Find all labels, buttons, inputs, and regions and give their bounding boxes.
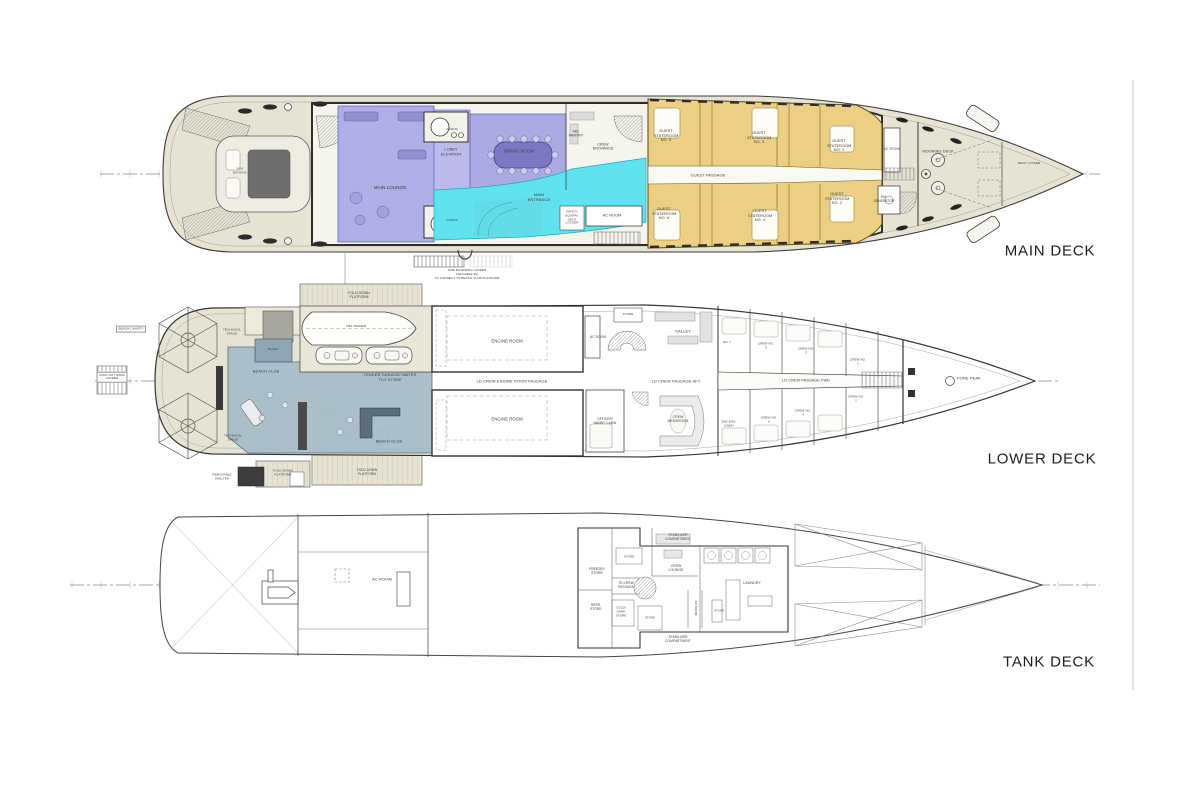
label-ld-crew-passage-fwd: LD CREW PASSAGE FWD (782, 379, 830, 384)
main-deck-title: MAIN DECK (1005, 243, 1096, 260)
label-tender-garage: TENDER GARAGE/ WATER TOY STORE (361, 372, 419, 382)
label-safety-locker: SAFETY EQUIPM. DECK LOCKER (562, 211, 582, 226)
lower-deck-drawing (95, 284, 1060, 487)
label-crew-no2: CREW NO. 2 (847, 395, 865, 403)
label-fold-down-platform-top: FOLD DOWN PLATFORM (342, 291, 376, 300)
label-crew-lounge: CREW LOUNGE (664, 564, 688, 573)
label-tender: 10M TENDER (346, 325, 366, 329)
label-ld-crew-passage-aft: LD CREW PASSAGE AFT (652, 379, 701, 384)
label-fold-down-platform-b1: FOLD DOWN PLATFORM (269, 469, 297, 477)
label-beach-canopy: BEACH CANOPY (116, 326, 146, 333)
label-guest-stateroom-2: GUEST STATEROOM NO. 2 (825, 192, 849, 206)
label-store-top: STORE (624, 555, 634, 558)
label-ac-room-vert: AC ROOM (693, 600, 697, 615)
label-store-right: STORE (714, 609, 724, 612)
label-2nd-eng-cabin: 2ND ENG. CABIN (719, 420, 739, 428)
label-guest-passage: GUEST PASSAGE (691, 173, 726, 178)
label-store-mid: STORE (645, 616, 655, 619)
lower-deck-title: LOWER DECK (988, 451, 1097, 468)
label-crew-no5: CREW NO. 5 (757, 342, 775, 350)
label-crew-no6: CREW NO. 6 (760, 416, 778, 424)
label-crew-entrance: CREW ENTRANCE (590, 143, 616, 152)
label-sauna: SAUNA (268, 348, 279, 352)
label-guest-stateroom-1: GUEST STATEROOM NO. 1 (827, 139, 851, 153)
label-store-ld: STORE (623, 313, 634, 317)
label-em-generator: EM. GENERATOR (872, 195, 896, 203)
label-ac-room-mid: AC ROOM (603, 214, 622, 219)
label-fold-down-platform-b2: FOLD DOWN PLATFORM (351, 468, 383, 476)
label-mooring-deck: MOORING DECK (922, 150, 953, 155)
label-casing-bottom: CASING (446, 219, 458, 223)
label-sun-bathing: SUN BATHING (232, 167, 248, 175)
label-removable-shelter: REMOVABLE SHELTER (210, 473, 234, 481)
main-deck-drawing (100, 96, 1100, 284)
label-ac-room-ld: AC ROOM (590, 335, 606, 339)
label-casing-top: CASING (446, 128, 458, 132)
label-crew-no4: CREW NO. 4 (794, 409, 812, 417)
label-engine-room-bottom: ENGINE ROOM (491, 416, 522, 421)
label-technical-space-top: TECHNICAL SPACE (219, 328, 245, 336)
label-laundry: LAUNDRY (743, 581, 761, 585)
label-main-entrance: MAIN ENTRANCE (526, 192, 552, 202)
label-guest-stateroom-6: GUEST STATEROOM NO. 6 (652, 207, 676, 221)
label-fore-peak: FORE PEAK (957, 376, 981, 381)
label-crew-no3: CREW NO. 3 (797, 347, 815, 355)
label-stabilizer-top: STABILIZER COMPARTMENT (660, 533, 696, 541)
label-deck-locker: DECK LOCKER (1018, 162, 1041, 166)
label-md-pantry: MD PANTRY (566, 130, 586, 139)
label-ac-room-fwd: AC ROOM (884, 147, 901, 151)
label-fold-out-swim-ladder: FOLD OUT SWIM LADDER (97, 372, 128, 383)
note-boarding-ladder-3: TO CONNECT TO BEACH CLUB PLATFORM (435, 277, 500, 281)
label-td-crew-passage: TD CREW PASSAGE (614, 581, 638, 589)
deck-plan-canvas: SUN BATHING MAIN LOUNGE LOBBY ELEVATOR D… (0, 0, 1200, 800)
label-dining-room: DINING ROOM (504, 148, 534, 153)
label-crew-no1: CREW NO. 1 (849, 358, 867, 366)
label-stabilizer-bottom: STABILIZER COMPARTMENT (660, 635, 696, 643)
label-main-lounge: MAIN LOUNGE (374, 185, 407, 191)
tank-deck-drawing (70, 513, 1100, 657)
label-engine-room-top: ENGINE ROOM (491, 338, 522, 343)
label-ac-room-td: AC ROOM (372, 577, 392, 582)
label-lobby-elevator: LOBBY ELEVATOR (440, 147, 462, 156)
label-ld-crew-engine-room-passage: LD CREW ENGINE ROOM PASSAGE (476, 379, 547, 384)
label-guest-stateroom-5: GUEST STATEROOM NO. 5 (654, 129, 678, 143)
label-crew-messroom: CREW MESSROOM (665, 415, 691, 424)
label-refr-store: REFR. STORE (586, 603, 606, 611)
label-beach-club-1: BEACH CLUB (253, 369, 280, 374)
label-cabin-no7: NO. 7 (723, 341, 731, 345)
tank-deck-title: TANK DECK (1003, 654, 1095, 671)
label-guest-stateroom-4: GUEST STATEROOM NO. 4 (748, 209, 772, 223)
label-guest-stateroom-3: GUEST STATEROOM NO. 3 (747, 131, 771, 145)
label-cold-dark-store: COLD/ DARK STORE (612, 606, 630, 617)
deck-plans-drawing (0, 0, 1200, 800)
label-beach-club-2: BEACH CLUB (376, 439, 403, 444)
label-officer-nanny-cabin: OFFICER/ NANNY CABIN (593, 417, 617, 425)
label-galley: GALLEY (675, 329, 691, 334)
label-technical-space-bottom: TECHNICAL SPACE (220, 434, 246, 442)
label-freezer-store: FREEZER STORE (586, 567, 608, 575)
